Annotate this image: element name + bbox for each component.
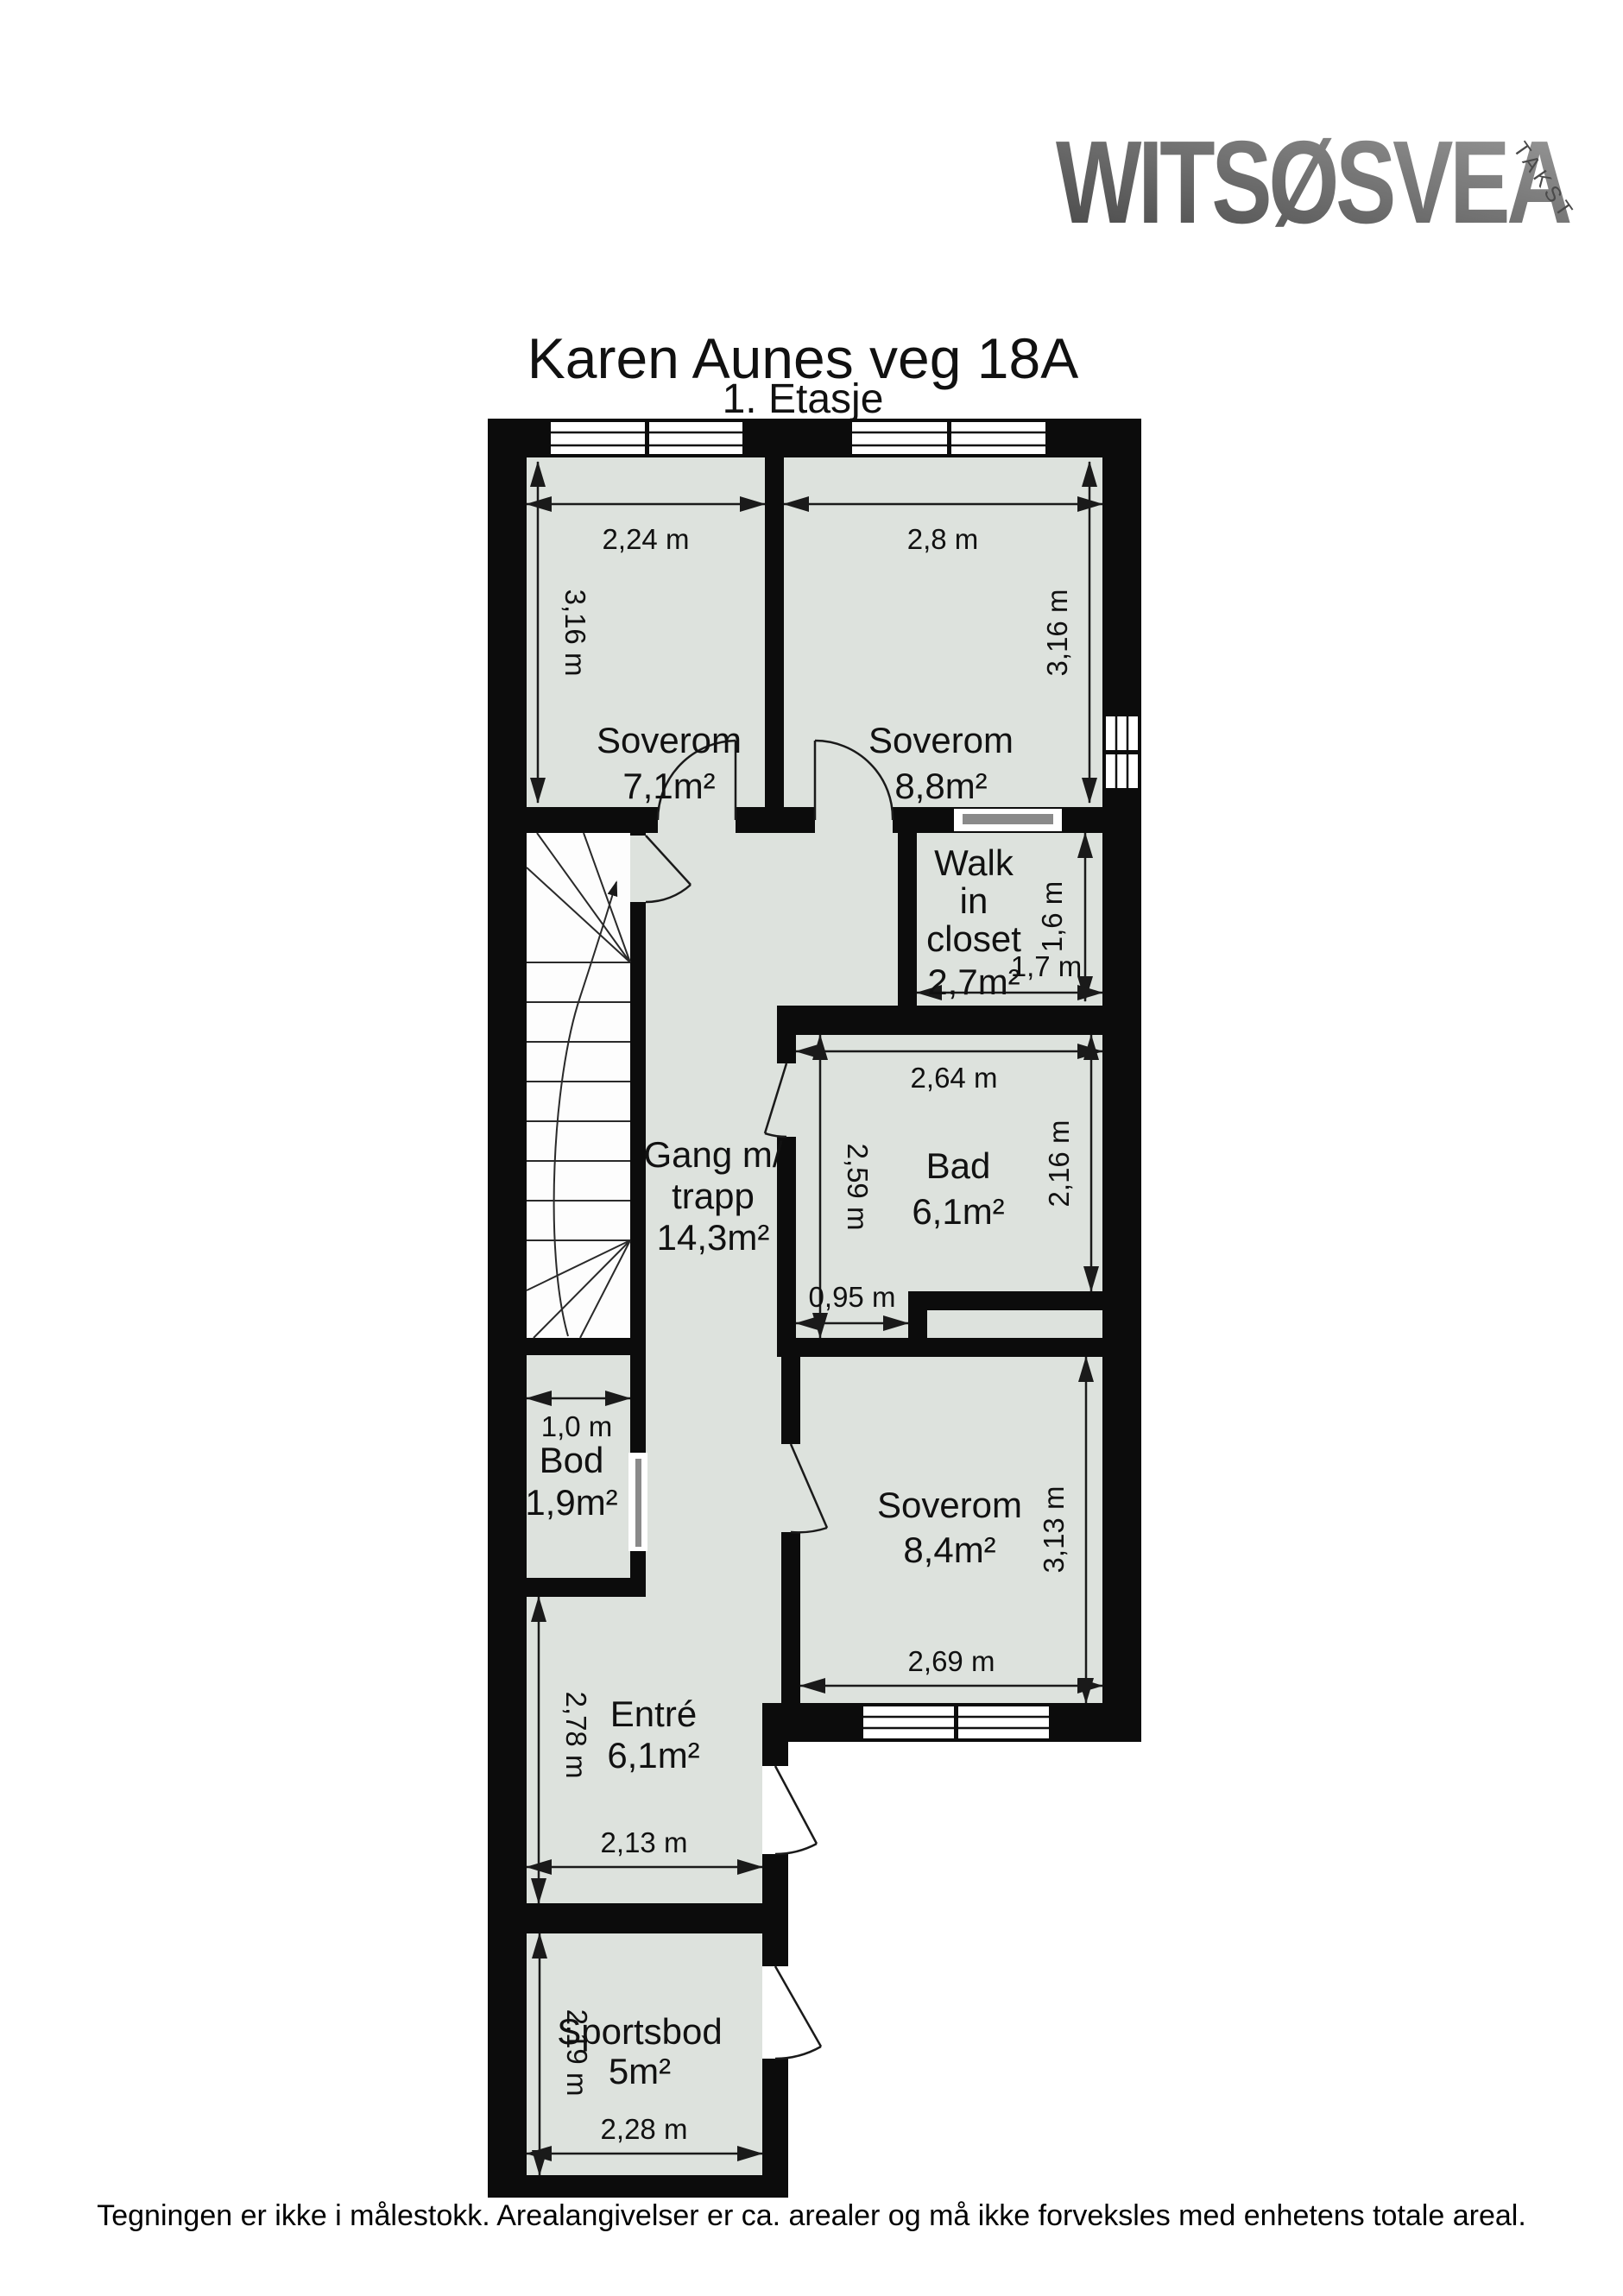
opening-soverom2-door — [815, 807, 893, 833]
opening-stairs-door — [630, 836, 646, 902]
svg-text:1,9m²: 1,9m² — [525, 1482, 617, 1523]
bod-sliding-door — [628, 1453, 647, 1551]
wall-wic-left — [898, 833, 917, 1006]
wall-bad-top — [777, 1006, 1102, 1035]
svg-text:1,0 m: 1,0 m — [541, 1410, 613, 1442]
window-top-left — [551, 422, 742, 454]
svg-text:1,7 m: 1,7 m — [1011, 950, 1083, 982]
floor-plan-page: WITSØSVEA TAKST Karen Aunes veg 18A 1. E… — [0, 0, 1623, 2296]
wall-stairs-right — [630, 833, 646, 1338]
svg-text:2,69 m: 2,69 m — [908, 1645, 995, 1677]
svg-text:closet: closet — [926, 918, 1021, 959]
floor-stairwell — [527, 833, 630, 1338]
svg-text:5m²: 5m² — [609, 2051, 671, 2091]
svg-text:trapp: trapp — [672, 1176, 755, 1216]
svg-text:2,13 m: 2,13 m — [601, 1826, 688, 1858]
window-right-wall — [1106, 716, 1138, 788]
svg-text:2,28 m: 2,28 m — [601, 2113, 688, 2145]
svg-text:8,4m²: 8,4m² — [903, 1530, 995, 1570]
wall-bedroom-divider — [765, 457, 784, 833]
svg-text:Bad: Bad — [926, 1145, 991, 1186]
svg-text:Soverom: Soverom — [597, 720, 742, 760]
logo: WITSØSVEA TAKST — [1056, 117, 1580, 248]
svg-text:14,3m²: 14,3m² — [657, 1217, 770, 1258]
svg-text:3,13 m: 3,13 m — [1038, 1486, 1070, 1574]
window-soverom3-left — [863, 1706, 954, 1738]
svg-text:6,1m²: 6,1m² — [607, 1735, 699, 1776]
svg-text:Bod: Bod — [540, 1440, 604, 1480]
svg-text:3,16 m: 3,16 m — [1041, 590, 1073, 677]
svg-text:2,24 m: 2,24 m — [603, 523, 690, 555]
wall-entre-bottom — [527, 1903, 788, 1933]
svg-text:2,78 m: 2,78 m — [560, 1692, 592, 1779]
room-entre: Entré 6,1m² — [607, 1694, 699, 1776]
footer-disclaimer: Tegningen er ikke i målestokk. Arealangi… — [97, 2199, 1526, 2232]
page-subtitle: 1. Etasje — [723, 376, 884, 422]
wall-soverom3-top — [777, 1338, 1141, 1357]
svg-text:2,64 m: 2,64 m — [911, 1062, 998, 1094]
svg-text:Entré: Entré — [610, 1694, 697, 1734]
wall-bod-bottom — [527, 1578, 646, 1597]
floor-plan-drawing: WITSØSVEA TAKST Karen Aunes veg 18A 1. E… — [0, 0, 1623, 2296]
svg-text:Soverom: Soverom — [877, 1485, 1022, 1525]
logo-brand-text: WITSØSVEA — [1056, 117, 1570, 248]
svg-text:2,16 m: 2,16 m — [1043, 1120, 1075, 1208]
wic-sliding-door — [954, 809, 1062, 831]
opening-entre-door — [762, 1766, 788, 1854]
svg-text:3,16 m: 3,16 m — [559, 590, 591, 677]
window-top-right — [852, 422, 1045, 454]
svg-text:6,1m²: 6,1m² — [912, 1191, 1004, 1232]
room-walk-in-closet: Walk in closet 2,7m² — [926, 842, 1021, 1002]
svg-text:2,8 m: 2,8 m — [907, 523, 979, 555]
wall-stairs-bottom — [527, 1338, 646, 1355]
opening-bad-door — [777, 1063, 796, 1137]
svg-text:Sportsbod: Sportsbod — [557, 2011, 722, 2052]
svg-text:Soverom: Soverom — [868, 720, 1014, 760]
svg-text:0,95 m: 0,95 m — [809, 1281, 896, 1313]
opening-soverom1-door — [658, 807, 736, 833]
svg-text:1,6 m: 1,6 m — [1036, 881, 1068, 953]
wall-bad-bottom-right — [908, 1291, 1102, 1310]
svg-text:2,59 m: 2,59 m — [842, 1144, 874, 1231]
svg-text:2,7m²: 2,7m² — [927, 962, 1020, 1002]
svg-text:7,1m²: 7,1m² — [622, 766, 715, 806]
svg-text:Walk: Walk — [934, 842, 1014, 883]
svg-text:in: in — [960, 880, 988, 921]
window-soverom3-right — [958, 1706, 1049, 1738]
svg-text:Gang m/: Gang m/ — [643, 1134, 782, 1175]
svg-text:8,8m²: 8,8m² — [894, 766, 987, 806]
